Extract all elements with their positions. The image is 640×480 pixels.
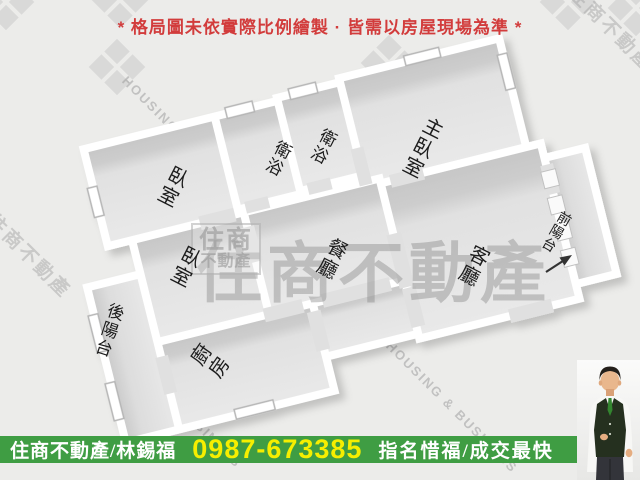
contact-banner: 住商不動產/林錫福 0987-673385 指名惜福/成交最快 bbox=[0, 436, 640, 463]
slogan-text: 指名惜福/成交最快 bbox=[378, 436, 553, 463]
rooms-walls bbox=[53, 25, 628, 443]
agent-figure bbox=[577, 360, 640, 480]
disclaimer-text: * 格局圖未依實際比例繪製 · 皆需以房屋現場為準 * bbox=[0, 13, 640, 38]
agent-photo bbox=[577, 360, 640, 480]
flyer-root: * 格局圖未依實際比例繪製 · 皆需以房屋現場為準 * HOUSING & BU… bbox=[0, 0, 640, 480]
agency-agent-name: 住商不動產/林錫福 bbox=[10, 436, 176, 463]
phone-number: 0987-673385 bbox=[192, 434, 362, 465]
